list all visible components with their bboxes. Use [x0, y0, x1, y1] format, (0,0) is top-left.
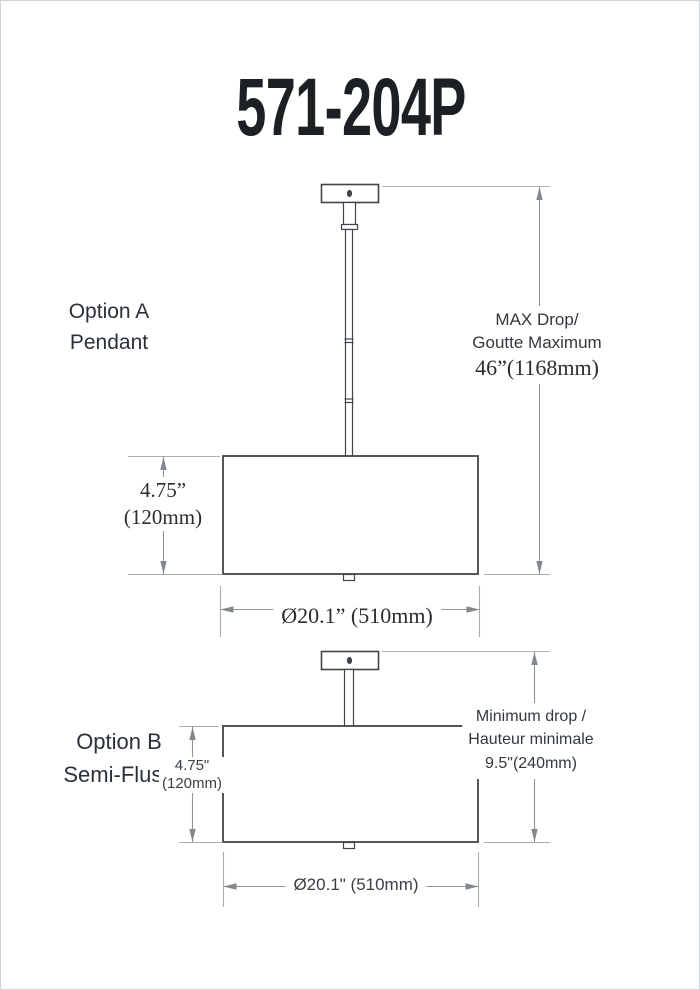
option-b-label: Option B Semi-Flush [63, 725, 174, 791]
model-number-title: 571-204P [232, 67, 470, 149]
option-a-max-drop-annotation: MAX Drop/ Goutte Maximum 46”(1168mm) [466, 306, 607, 384]
option-b-canopy-screw [347, 657, 352, 664]
min-drop-line3: 9.5"(240mm) [468, 751, 593, 777]
option-b-min-drop-annotation: Minimum drop / Hauteur minimale 9.5"(240… [462, 703, 599, 779]
option-b-finial [344, 843, 355, 849]
max-drop-line2: Goutte Maximum [472, 331, 601, 354]
option-a-stem [344, 203, 356, 225]
option-b-shade-height-annotation: 4.75" (120mm) [159, 757, 225, 793]
shade-height-b-line2: (120mm) [162, 775, 222, 793]
option-a-stem-collar [342, 225, 358, 230]
option-a-fixture [223, 185, 478, 581]
option-a-finial [344, 575, 355, 581]
option-b-fixture [223, 652, 478, 849]
option-b-label-line1: Option B [63, 725, 174, 758]
option-a-shade-height-annotation: 4.75” (120mm) [120, 477, 206, 531]
shade-height-a-line2: (120mm) [124, 504, 202, 531]
min-drop-line1: Minimum drop / [468, 705, 593, 728]
min-drop-line2: Hauteur minimale [468, 728, 593, 751]
spec-sheet-page: 571-204P Option A Pendant MAX Drop/ Gout… [0, 0, 700, 990]
option-b-drum-shade [223, 726, 478, 842]
option-b-stem [345, 670, 354, 727]
option-a-diameter-annotation: Ø20.1” (510mm) [273, 602, 441, 630]
option-a-canopy-screw [347, 190, 352, 197]
max-drop-line1: MAX Drop/ [472, 308, 601, 331]
max-drop-line3: 46”(1168mm) [472, 354, 601, 382]
option-a-label-line1: Option A [69, 296, 150, 327]
option-a-label: Option A Pendant [69, 296, 150, 358]
shade-height-b-line1: 4.75" [162, 757, 222, 775]
option-a-drum-shade [223, 456, 478, 574]
shade-height-a-line1: 4.75” [124, 477, 202, 504]
option-b-label-line2: Semi-Flush [63, 758, 174, 791]
option-b-diameter-annotation: Ø20.1" (510mm) [285, 874, 426, 895]
option-a-label-line2: Pendant [69, 327, 150, 358]
